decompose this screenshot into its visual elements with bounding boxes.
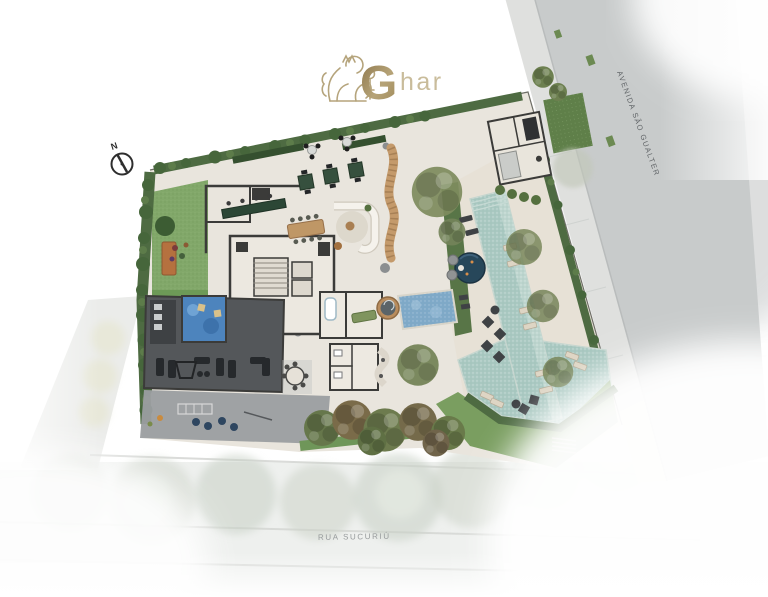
brand-logo: G har — [322, 56, 443, 110]
lawn-garden — [152, 180, 208, 310]
sink-1 — [381, 358, 385, 362]
street-label-rua: RUA SUCURIÚ — [318, 532, 391, 542]
lockers — [150, 300, 176, 344]
bathtub — [325, 298, 336, 320]
faded-entrance-tree — [553, 148, 593, 188]
toilet-1 — [334, 350, 342, 356]
play-mat-2 — [214, 309, 222, 317]
elevator-1 — [292, 262, 312, 278]
garden-bush — [155, 216, 175, 236]
play-mat-1 — [197, 303, 205, 311]
elevator-2 — [292, 280, 312, 296]
shaft — [236, 242, 248, 252]
locker-doors — [154, 304, 162, 330]
stairs — [254, 258, 288, 296]
kids-rug-1 — [187, 304, 199, 316]
pouf — [334, 242, 342, 250]
kids-rug-2 — [203, 318, 219, 334]
logo-letter-g: G — [360, 57, 397, 110]
outdoor-fitness-deck — [140, 390, 330, 444]
sink-2 — [379, 374, 383, 378]
round-hot-tub — [377, 297, 399, 319]
plant — [365, 205, 372, 212]
logo-suffix: har — [400, 68, 444, 96]
kids-playroom — [182, 296, 226, 342]
site-plan-illustration: AVENIDA SÃO GUALTER RUA SUCURIÚ N G har — [0, 0, 768, 597]
lawn-texture — [152, 180, 208, 294]
private-dining — [282, 360, 313, 394]
toilet-2 — [334, 372, 342, 378]
compass-n-label: N — [110, 140, 119, 152]
north-arrow: N — [110, 140, 133, 174]
coffee-table — [346, 222, 355, 231]
site-plan-page: AVENIDA SÃO GUALTER RUA SUCURIÚ N G har — [0, 0, 768, 597]
shaft-2 — [318, 242, 330, 256]
compass-pivot — [121, 163, 124, 166]
